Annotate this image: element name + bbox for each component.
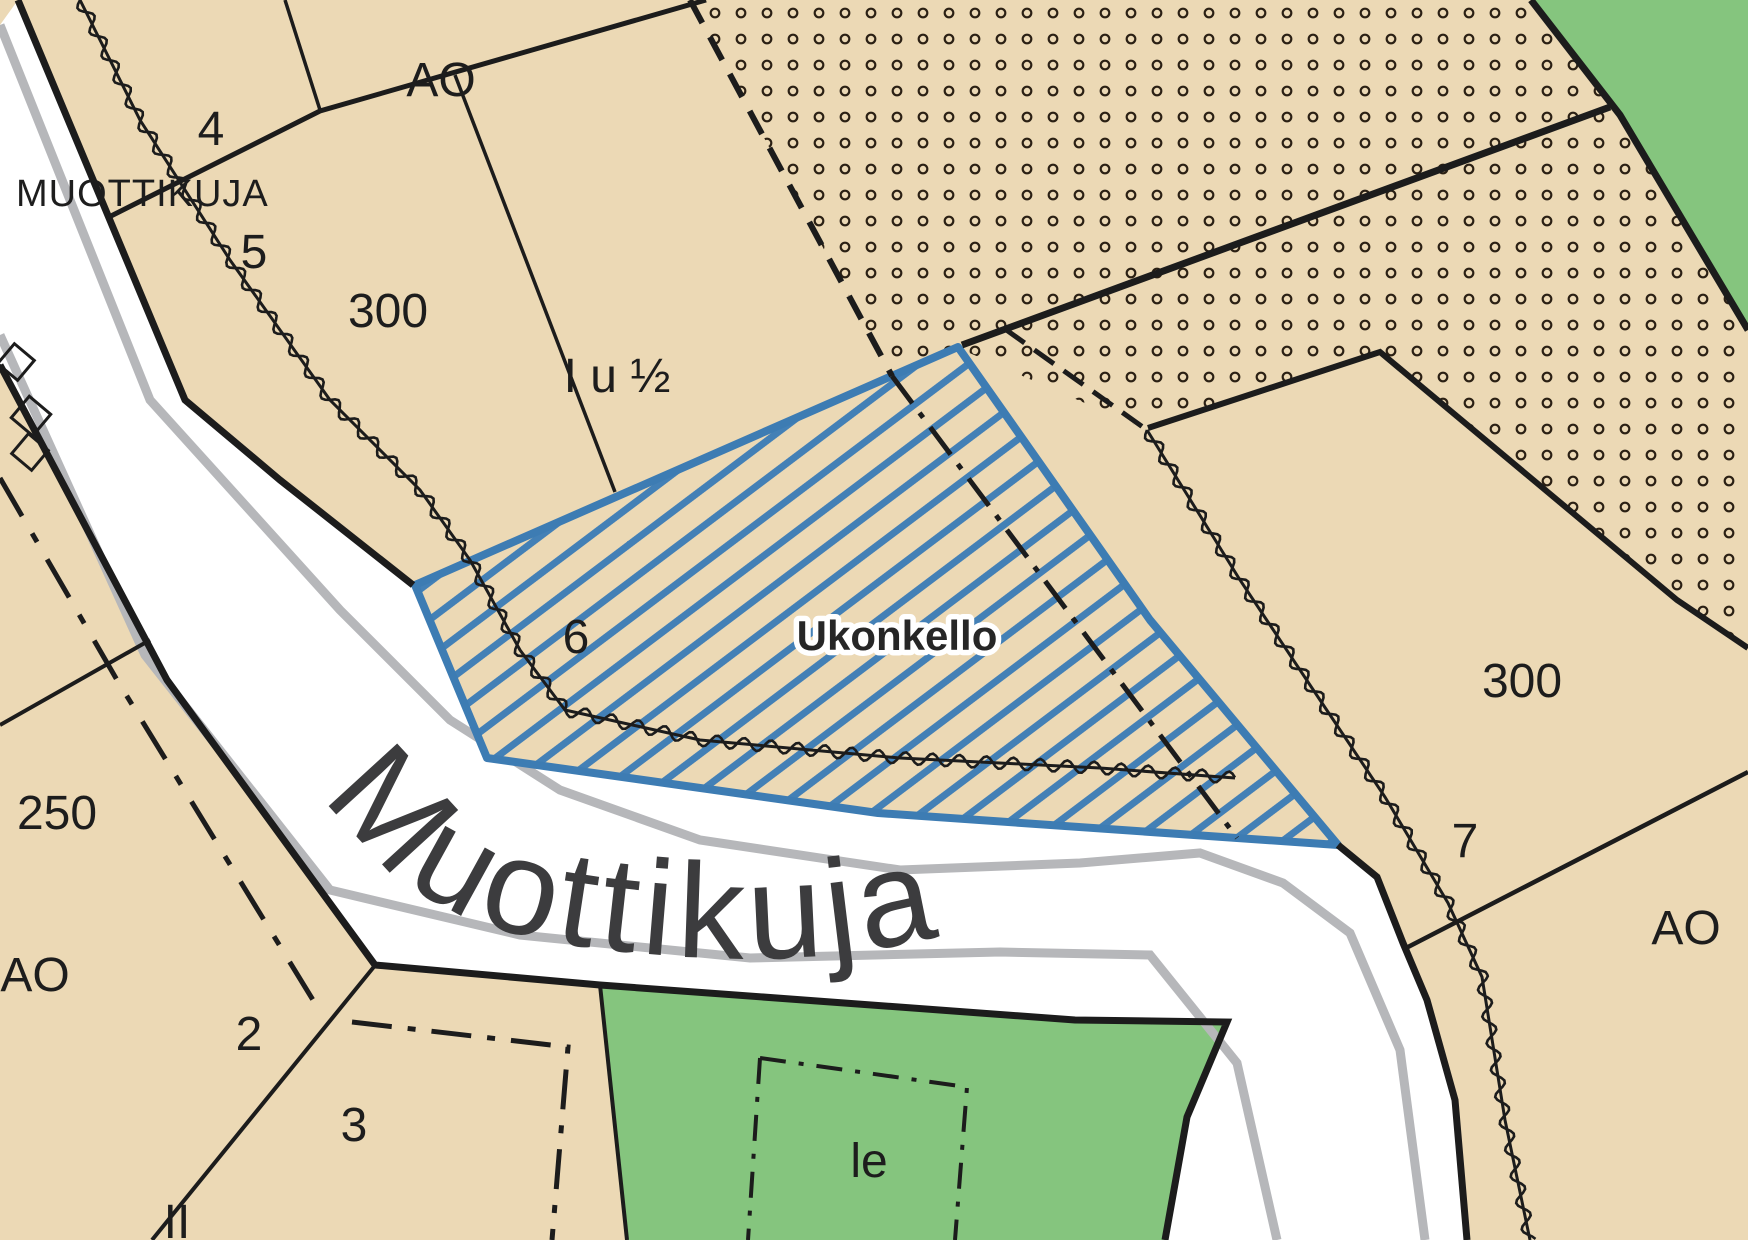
label-lot-5: 5 [241,226,268,279]
label-play-area: le [850,1135,887,1188]
label-area-250: 250 [17,787,97,840]
label-lot-2: 2 [236,1008,263,1061]
label-lot-4: 4 [198,103,225,156]
label-lot-7: 7 [1452,815,1479,868]
label-zone-ao-right: AO [1651,902,1720,955]
label-area-300-left: 300 [348,285,428,338]
street-name-small: MUOTTIKUJA [16,173,269,215]
label-lot-6: 6 [563,611,590,664]
label-lot-3: 3 [341,1099,368,1152]
label-zone-ao-left: AO [0,949,69,1002]
map-canvas: Muottikuja 4 MUOTTIKUJA 5 AO 300 I u ½ 6… [0,0,1748,1240]
label-zone-ao-top: AO [406,54,475,107]
label-parcel-name: Ukonkello [797,612,998,659]
label-floors-roman: II [164,1196,191,1240]
zoning-map: Muottikuja 4 MUOTTIKUJA 5 AO 300 I u ½ 6… [0,0,1748,1240]
label-area-300-right: 300 [1482,655,1562,708]
label-floors-ratio: I u ½ [564,350,671,403]
